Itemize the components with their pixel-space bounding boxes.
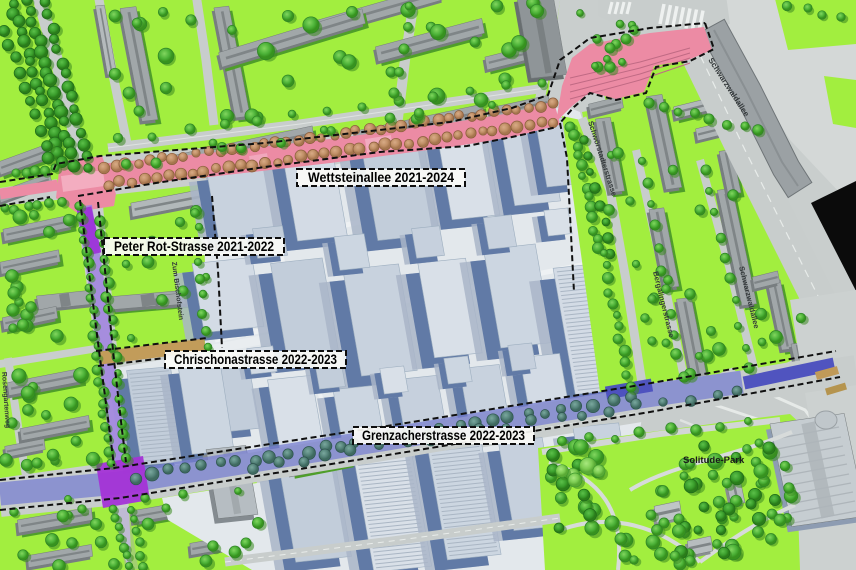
- svg-text:Wettsteinallee 2021-2024: Wettsteinallee 2021-2024: [308, 169, 454, 185]
- svg-text:Solitude-Park: Solitude-Park: [683, 455, 745, 466]
- svg-text:Peter Rot-Strasse 2021-2022: Peter Rot-Strasse 2021-2022: [114, 238, 274, 254]
- svg-text:Chrischonastrasse 2022-2023: Chrischonastrasse 2022-2023: [174, 351, 337, 367]
- svg-text:Grenzacherstrasse 2022-2023: Grenzacherstrasse 2022-2023: [362, 427, 525, 443]
